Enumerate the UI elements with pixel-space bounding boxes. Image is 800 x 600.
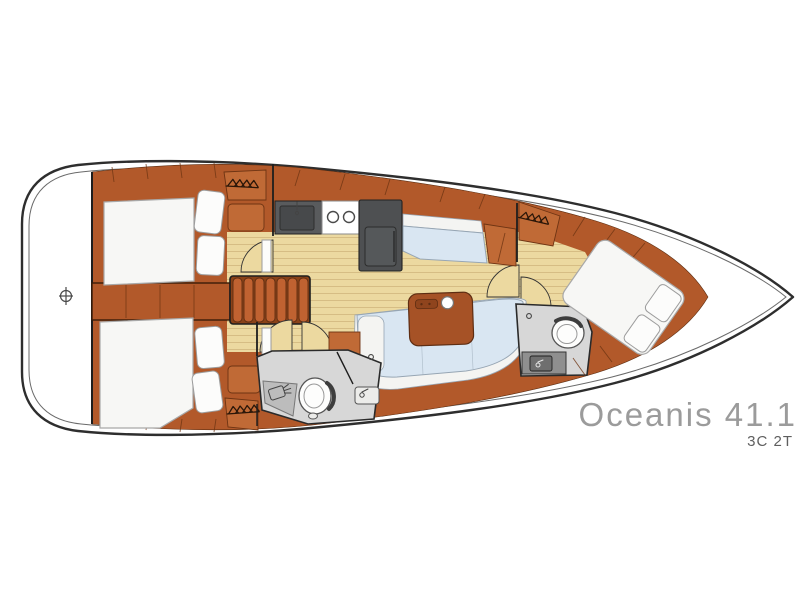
yacht-floorplan-drawing: Oceanis 41.1 3C 2T [0, 0, 800, 600]
pillow [191, 370, 223, 413]
cabin-door-leaf [262, 240, 271, 272]
forward-head [516, 304, 592, 376]
burner-icon [344, 212, 355, 223]
table-knob [441, 297, 453, 309]
saloon-table [408, 292, 474, 346]
hanging-locker [224, 170, 266, 200]
pillow [194, 190, 226, 235]
fridge-door [365, 227, 396, 266]
configuration-label: 3C 2T [747, 433, 793, 450]
burner-icon [328, 212, 339, 223]
pillow [194, 326, 224, 369]
washbasin [530, 356, 552, 371]
settee-end-cabinet [484, 224, 516, 266]
nightstand [228, 204, 264, 231]
pillow [196, 235, 225, 275]
double-berth [100, 318, 193, 428]
title-block: Oceanis 41.1 3C 2T [579, 396, 797, 450]
toilet-icon [552, 318, 584, 348]
yacht-floorplan-page: Oceanis 41.1 3C 2T [0, 0, 800, 600]
double-berth [104, 198, 194, 285]
model-label: Oceanis 41.1 [579, 396, 797, 433]
nightstand [228, 366, 260, 393]
aft-head [257, 350, 381, 424]
